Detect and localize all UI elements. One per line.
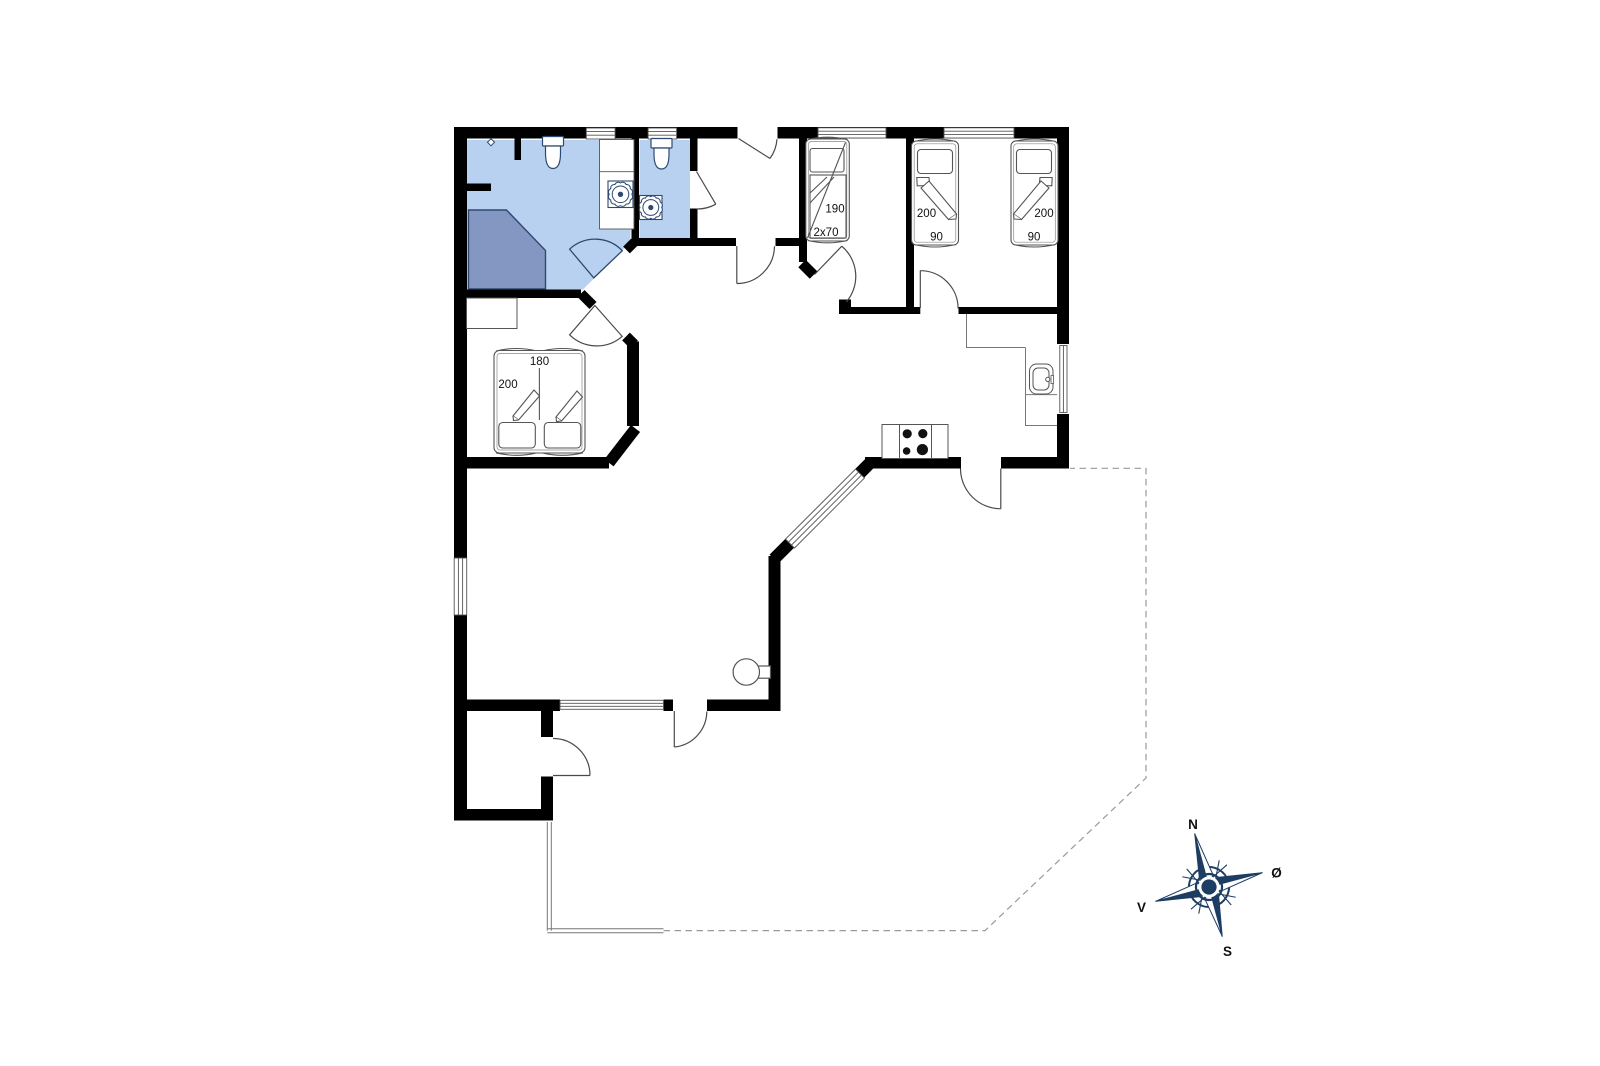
svg-text:V: V [1137,900,1146,915]
svg-text:N: N [1188,817,1198,832]
svg-text:Ø: Ø [1271,866,1282,881]
svg-text:200: 200 [917,208,936,220]
svg-text:2x70: 2x70 [814,227,839,239]
svg-text:S: S [1223,944,1232,959]
svg-text:90: 90 [930,231,943,243]
svg-text:180: 180 [530,356,549,368]
svg-text:90: 90 [1028,231,1041,243]
svg-text:200: 200 [498,379,517,391]
svg-text:200: 200 [1034,208,1053,220]
svg-text:190: 190 [825,204,844,216]
